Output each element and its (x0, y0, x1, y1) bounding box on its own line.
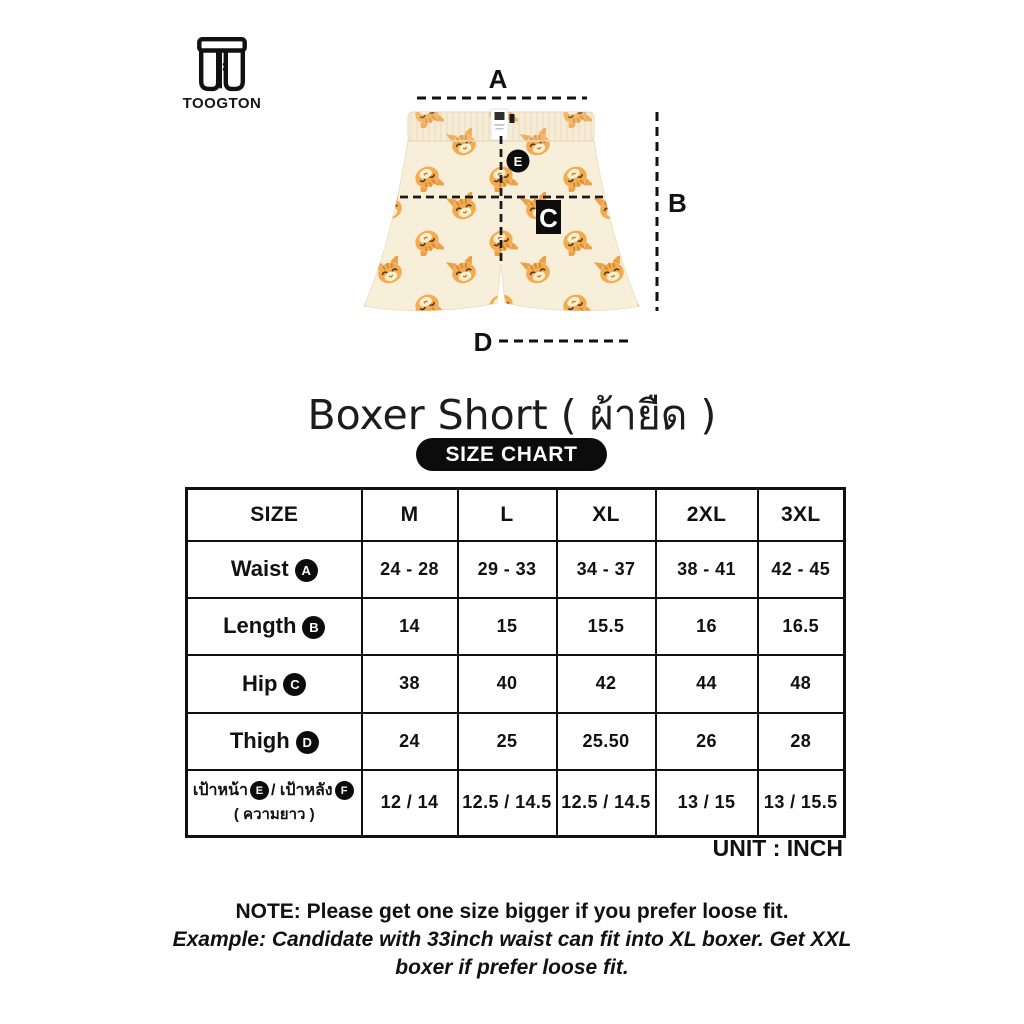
waist-l: 29 - 33 (458, 541, 557, 598)
length-3xl: 16.5 (758, 598, 845, 655)
thigh-3xl: 28 (758, 713, 845, 770)
note-line: NOTE: Please get one size bigger if you … (0, 898, 1024, 926)
rise-m: 12 / 14 (362, 770, 458, 837)
diagram-label-b: B (668, 188, 687, 218)
waist-xl: 34 - 37 (557, 541, 656, 598)
unit-label: UNIT : INCH (543, 835, 843, 862)
size-chart-table-wrap: SIZE M L XL 2XL 3XL WaistA 24 - 28 29 - … (185, 487, 846, 838)
measurement-diagram: A B D E C (340, 60, 720, 360)
table-row-thigh: ThighD 24 25 25.50 26 28 (187, 713, 845, 770)
table-row-hip: HipC 38 40 42 44 48 (187, 655, 845, 713)
badge-a: A (295, 559, 318, 582)
rise-xl: 12.5 / 14.5 (557, 770, 656, 837)
hip-2xl: 44 (656, 655, 758, 713)
rise-2xl: 13 / 15 (656, 770, 758, 837)
length-2xl: 16 (656, 598, 758, 655)
waist-3xl: 42 - 45 (758, 541, 845, 598)
note-example-line-2: boxer if prefer loose fit. (0, 954, 1024, 982)
waist-m: 24 - 28 (362, 541, 458, 598)
row-label-thigh: ThighD (187, 713, 362, 770)
boxer-shorts-illustration: A B D E C (340, 60, 720, 360)
badge-d: D (296, 731, 319, 754)
note-block: NOTE: Please get one size bigger if you … (0, 898, 1024, 982)
diagram-badge-e: E (507, 150, 530, 173)
badge-e: E (250, 781, 269, 800)
col-header-2xl: 2XL (656, 489, 758, 541)
diagram-label-a: A (489, 64, 508, 94)
brand-logo: TOOGTON (182, 36, 262, 112)
col-header-3xl: 3XL (758, 489, 845, 541)
rise-3xl: 13 / 15.5 (758, 770, 845, 837)
badge-b: B (302, 616, 325, 639)
hip-l: 40 (458, 655, 557, 713)
col-header-size: SIZE (187, 489, 362, 541)
diagram-badge-c: C (536, 200, 561, 234)
col-header-l: L (458, 489, 557, 541)
table-row-rise: เป้าหน้าE/ เป้าหลังF ( ความยาว ) 12 / 14… (187, 770, 845, 837)
note-example-line-1: Example: Candidate with 33inch waist can… (0, 926, 1024, 954)
thigh-2xl: 26 (656, 713, 758, 770)
thigh-l: 25 (458, 713, 557, 770)
thigh-m: 24 (362, 713, 458, 770)
brand-name: TOOGTON (182, 95, 262, 112)
size-chart-table: SIZE M L XL 2XL 3XL WaistA 24 - 28 29 - … (185, 487, 846, 838)
page: TOOGTON (0, 0, 1024, 1024)
length-m: 14 (362, 598, 458, 655)
thigh-xl: 25.50 (557, 713, 656, 770)
length-xl: 15.5 (557, 598, 656, 655)
diagram-label-d: D (474, 327, 493, 357)
boxer-shorts-icon (190, 36, 254, 94)
badge-f: F (335, 781, 354, 800)
row-label-rise: เป้าหน้าE/ เป้าหลังF ( ความยาว ) (187, 770, 362, 837)
svg-text:E: E (514, 154, 523, 169)
hip-m: 38 (362, 655, 458, 713)
hip-xl: 42 (557, 655, 656, 713)
row-label-length: LengthB (187, 598, 362, 655)
size-chart-badge: SIZE CHART (416, 438, 607, 471)
row-label-waist: WaistA (187, 541, 362, 598)
table-row-length: LengthB 14 15 15.5 16 16.5 (187, 598, 845, 655)
rise-l: 12.5 / 14.5 (458, 770, 557, 837)
col-header-m: M (362, 489, 458, 541)
table-row-waist: WaistA 24 - 28 29 - 33 34 - 37 38 - 41 4… (187, 541, 845, 598)
length-l: 15 (458, 598, 557, 655)
col-header-xl: XL (557, 489, 656, 541)
waist-2xl: 38 - 41 (656, 541, 758, 598)
svg-text:C: C (539, 203, 558, 233)
badge-c: C (283, 673, 306, 696)
hip-3xl: 48 (758, 655, 845, 713)
row-label-hip: HipC (187, 655, 362, 713)
header-row: SIZE M L XL 2XL 3XL (187, 489, 845, 541)
